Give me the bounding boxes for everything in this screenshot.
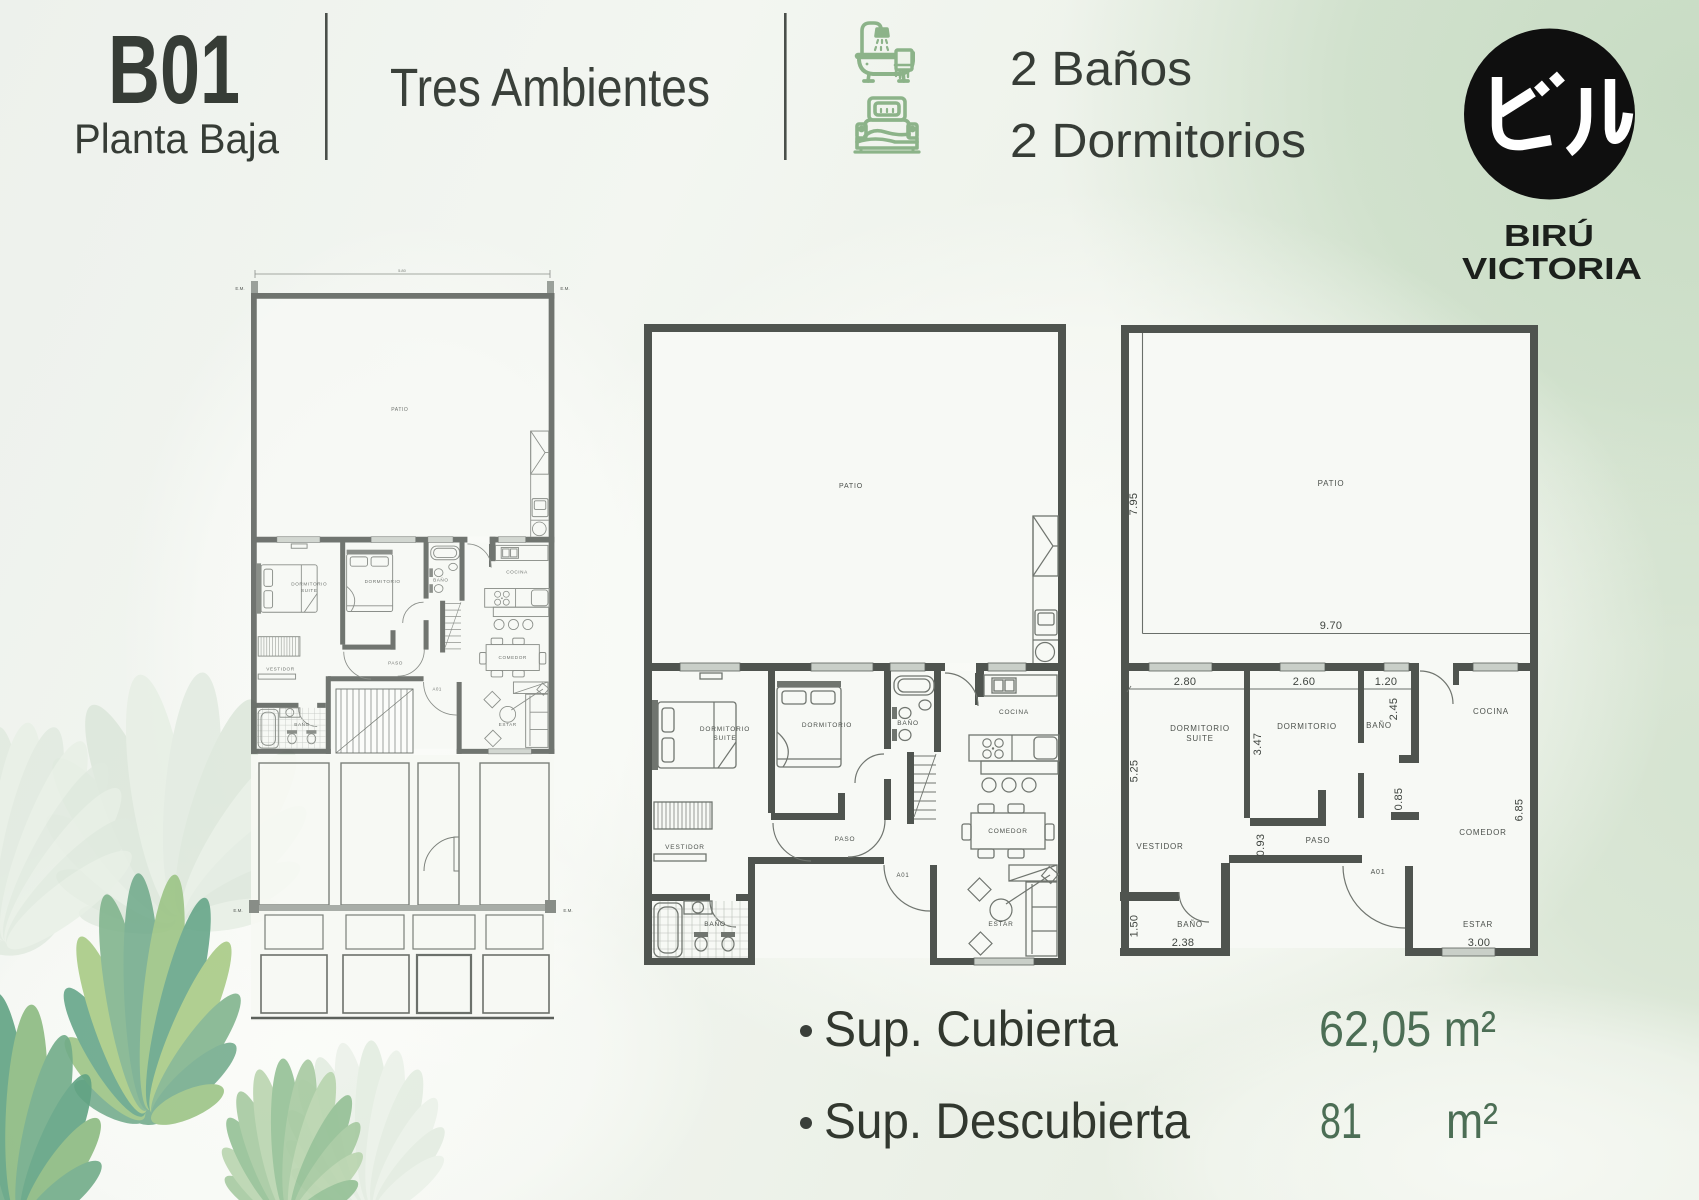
svg-text:81: 81 [1320,1093,1362,1149]
svg-text:PASO: PASO [1306,836,1331,845]
svg-text:3.00: 3.00 [1468,937,1491,949]
svg-text:COCINA: COCINA [1473,707,1509,716]
svg-text:VESTIDOR: VESTIDOR [1136,842,1183,851]
svg-text:PASO: PASO [835,836,856,843]
svg-text:Sup. Descubierta: Sup. Descubierta [824,1093,1190,1149]
svg-text:7.95: 7.95 [1128,493,1140,516]
svg-text:BAÑO: BAÑO [704,919,726,928]
svg-text:DORMITORIO: DORMITORIO [1170,724,1230,733]
svg-text:DORMITORIO: DORMITORIO [700,726,750,733]
svg-text:2 Baños: 2 Baños [1010,43,1192,96]
svg-text:5.80: 5.80 [398,268,407,273]
svg-text:2 Dormitorios: 2 Dormitorios [1010,115,1306,168]
svg-text:DORMITORIO: DORMITORIO [1277,722,1337,731]
svg-text:m²: m² [1446,1093,1498,1149]
svg-text:DORMITORIO: DORMITORIO [802,722,852,729]
svg-text:VICTORIA: VICTORIA [1462,251,1642,286]
svg-text:ESTAR: ESTAR [988,921,1013,928]
svg-text:ESTAR: ESTAR [1463,920,1493,929]
svg-text:1.20: 1.20 [1375,676,1398,688]
svg-text:E.M.: E.M. [560,286,569,291]
svg-text:A01: A01 [1371,869,1386,876]
svg-text:PATIO: PATIO [839,483,863,490]
svg-text:BAÑO: BAÑO [1366,721,1392,730]
svg-text:PATIO: PATIO [1318,479,1345,488]
svg-text:E.M.: E.M. [233,908,242,913]
svg-text:2.38: 2.38 [1172,937,1195,949]
svg-text:Sup. Cubierta: Sup. Cubierta [824,1001,1118,1057]
svg-text:E.M.: E.M. [563,908,572,913]
svg-text:2.60: 2.60 [1293,676,1316,688]
svg-text:3.47: 3.47 [1252,733,1264,756]
svg-text:5.25: 5.25 [1129,760,1141,783]
svg-text:B01: B01 [108,15,240,124]
svg-text:BIRÚ: BIRÚ [1504,217,1594,253]
svg-text:SUITE: SUITE [1186,734,1214,743]
svg-text:COCINA: COCINA [999,709,1029,716]
svg-text:6.85: 6.85 [1514,799,1526,822]
svg-text:Tres Ambientes: Tres Ambientes [390,58,710,118]
svg-text:Planta Baja: Planta Baja [74,115,280,162]
svg-text:COMEDOR: COMEDOR [988,828,1028,835]
svg-text:9.70: 9.70 [1320,620,1343,632]
svg-text:62,05 m²: 62,05 m² [1319,1001,1496,1057]
svg-text:A01: A01 [896,873,909,879]
svg-text:BAÑO: BAÑO [897,718,919,727]
svg-text:SUITE: SUITE [713,735,736,742]
svg-text:VESTIDOR: VESTIDOR [665,844,705,851]
svg-text:BAÑO: BAÑO [1177,920,1203,929]
svg-text:1.50: 1.50 [1129,915,1141,938]
svg-text:COMEDOR: COMEDOR [1459,828,1506,837]
svg-text:E.M.: E.M. [235,286,244,291]
svg-text:2.45: 2.45 [1388,698,1400,721]
svg-text:0.85: 0.85 [1393,788,1405,811]
svg-text:2.80: 2.80 [1174,676,1197,688]
svg-text:0.93: 0.93 [1255,834,1267,857]
